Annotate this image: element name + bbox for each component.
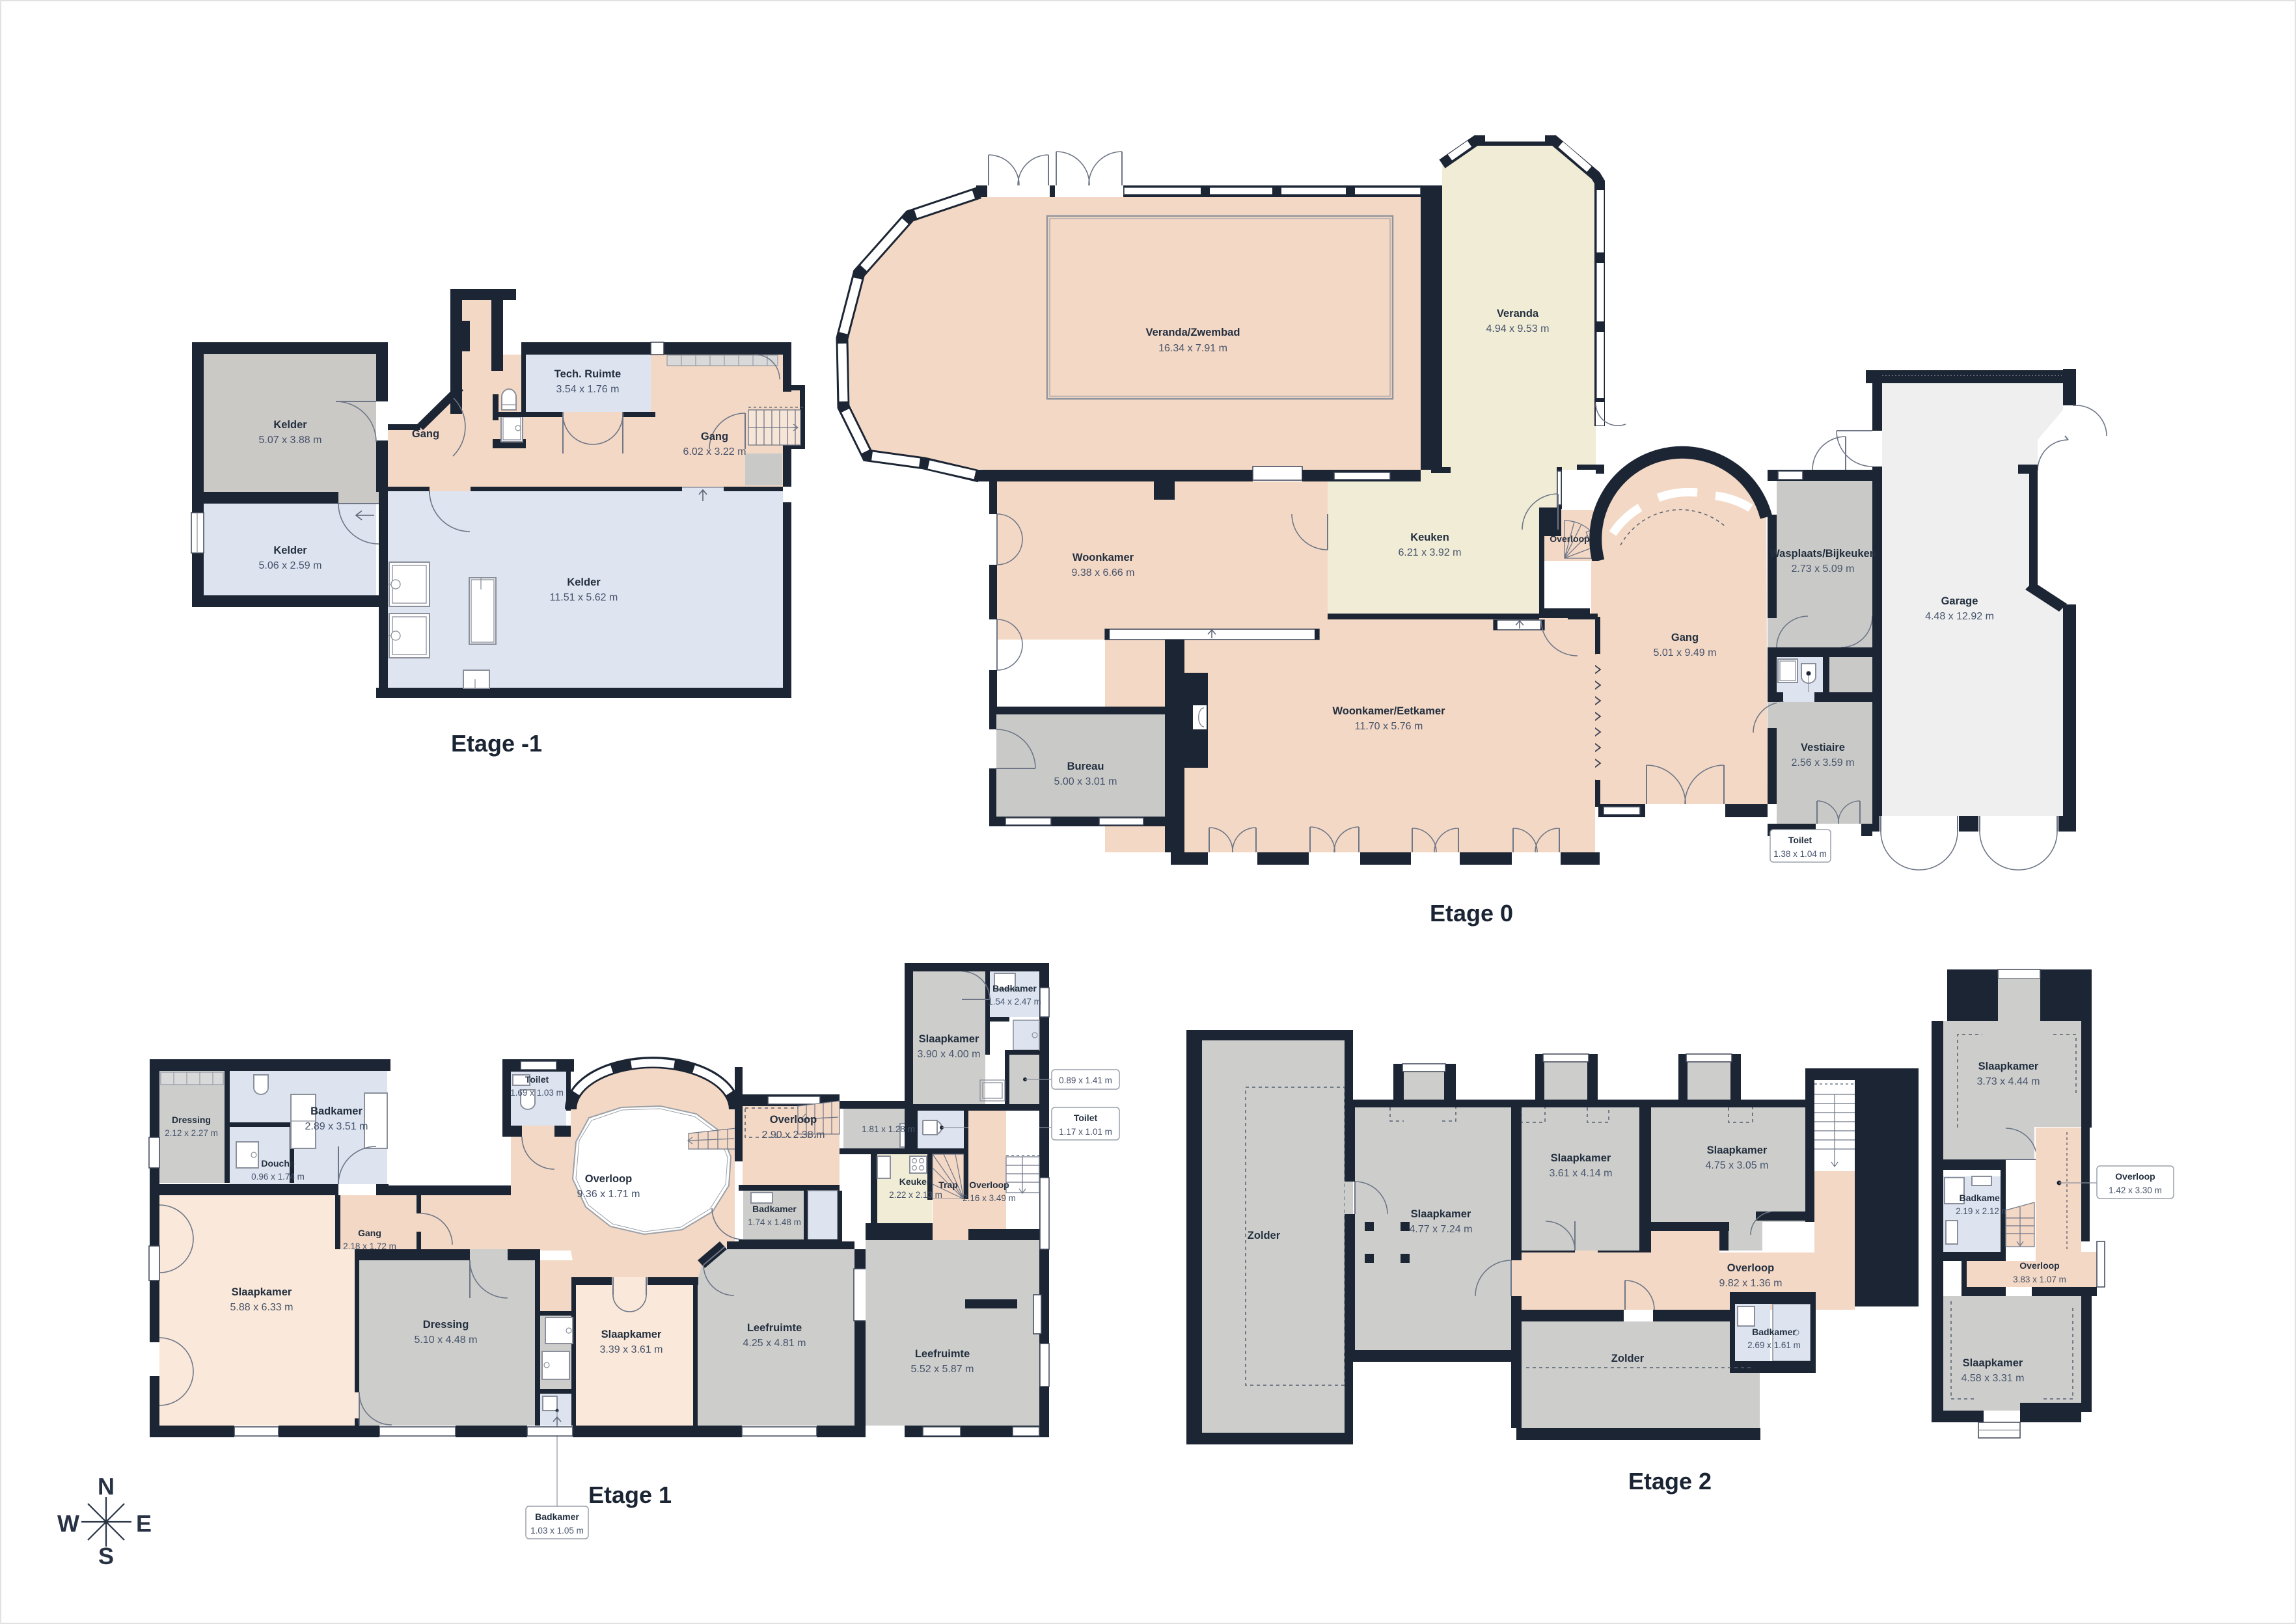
svg-text:3.90 x 4.00 m: 3.90 x 4.00 m bbox=[918, 1049, 981, 1060]
svg-text:Slaapkamer: Slaapkamer bbox=[1551, 1152, 1611, 1164]
svg-text:Overloop: Overloop bbox=[770, 1114, 817, 1126]
svg-text:Badkamer: Badkamer bbox=[310, 1105, 362, 1117]
svg-text:Slaapkamer: Slaapkamer bbox=[232, 1286, 292, 1298]
svg-text:2.22 x 2.13 m: 2.22 x 2.13 m bbox=[889, 1190, 942, 1200]
svg-text:5.10 x 4.48 m: 5.10 x 4.48 m bbox=[415, 1334, 478, 1346]
svg-text:Overloop: Overloop bbox=[2019, 1260, 2059, 1271]
svg-text:2.69 x 1.61 m: 2.69 x 1.61 m bbox=[1747, 1340, 1801, 1350]
svg-text:9.38 x 6.66 m: 9.38 x 6.66 m bbox=[1072, 567, 1135, 578]
svg-text:Dressing: Dressing bbox=[172, 1115, 211, 1125]
svg-text:Etage -1: Etage -1 bbox=[451, 730, 542, 757]
svg-text:4.94 x 9.53 m: 4.94 x 9.53 m bbox=[1486, 323, 1550, 334]
svg-text:2.90 x 2.38 m: 2.90 x 2.38 m bbox=[762, 1130, 825, 1141]
svg-text:1.54 x 2.47 m: 1.54 x 2.47 m bbox=[988, 997, 1041, 1007]
svg-text:1.03 x 1.05 m: 1.03 x 1.05 m bbox=[530, 1526, 584, 1536]
svg-text:Keuken: Keuken bbox=[1410, 532, 1449, 543]
svg-text:2.56 x 3.59 m: 2.56 x 3.59 m bbox=[1792, 757, 1855, 768]
svg-text:Badkamer: Badkamer bbox=[535, 1511, 579, 1522]
svg-text:Dressing: Dressing bbox=[423, 1319, 469, 1331]
svg-text:Badkamer: Badkamer bbox=[752, 1204, 797, 1214]
svg-text:Gang: Gang bbox=[412, 428, 439, 440]
svg-text:Overloop: Overloop bbox=[969, 1180, 1009, 1190]
svg-text:Trap: Trap bbox=[938, 1180, 958, 1190]
svg-text:N: N bbox=[98, 1473, 115, 1500]
svg-text:5.06 x 2.59 m: 5.06 x 2.59 m bbox=[259, 560, 322, 571]
svg-text:6.02 x 3.22 m: 6.02 x 3.22 m bbox=[683, 446, 746, 457]
svg-text:Zolder: Zolder bbox=[1611, 1353, 1645, 1364]
svg-text:Toilet: Toilet bbox=[1074, 1113, 1098, 1123]
svg-text:Badkamer: Badkamer bbox=[1752, 1327, 1796, 1337]
svg-text:2.73 x 5.09 m: 2.73 x 5.09 m bbox=[1792, 563, 1855, 575]
svg-text:1.81 x 1.28 m: 1.81 x 1.28 m bbox=[862, 1124, 915, 1134]
svg-text:5.52 x 5.87 m: 5.52 x 5.87 m bbox=[911, 1364, 974, 1375]
svg-text:Slaapkamer: Slaapkamer bbox=[1411, 1208, 1471, 1220]
svg-text:1.17 x 1.01 m: 1.17 x 1.01 m bbox=[1059, 1127, 1112, 1137]
svg-text:Veranda: Veranda bbox=[1497, 308, 1539, 319]
svg-text:Veranda/Zwembad: Veranda/Zwembad bbox=[1146, 327, 1240, 338]
svg-text:Keuken: Keuken bbox=[899, 1176, 933, 1187]
svg-text:Wasplaats/Bijkeuken: Wasplaats/Bijkeuken bbox=[1770, 548, 1876, 560]
svg-text:Zolder: Zolder bbox=[1248, 1230, 1281, 1241]
svg-text:Gang: Gang bbox=[358, 1228, 381, 1238]
svg-text:4.25 x 4.81 m: 4.25 x 4.81 m bbox=[743, 1338, 806, 1349]
svg-text:Douche: Douche bbox=[261, 1158, 295, 1169]
svg-text:16.34 x 7.91 m: 16.34 x 7.91 m bbox=[1158, 343, 1227, 354]
svg-text:Etage 1: Etage 1 bbox=[588, 1482, 672, 1508]
svg-text:3.54 x 1.76 m: 3.54 x 1.76 m bbox=[556, 384, 620, 395]
svg-text:11.51 x 5.62 m: 11.51 x 5.62 m bbox=[550, 592, 618, 603]
svg-text:6.21 x 3.92 m: 6.21 x 3.92 m bbox=[1399, 547, 1462, 558]
svg-text:2.18 x 1.72 m: 2.18 x 1.72 m bbox=[343, 1241, 396, 1251]
svg-text:0.89 x 1.41 m: 0.89 x 1.41 m bbox=[1059, 1076, 1112, 1085]
svg-text:E: E bbox=[136, 1510, 152, 1537]
svg-text:3.61 x 4.14 m: 3.61 x 4.14 m bbox=[1550, 1168, 1613, 1179]
svg-text:Garage: Garage bbox=[1941, 595, 1978, 607]
svg-text:3.73 x 4.44 m: 3.73 x 4.44 m bbox=[1977, 1076, 2040, 1087]
svg-text:4.58 x 3.31 m: 4.58 x 3.31 m bbox=[1961, 1373, 2025, 1384]
svg-text:Overloop: Overloop bbox=[2115, 1171, 2155, 1182]
svg-text:Slaapkamer: Slaapkamer bbox=[1963, 1357, 2023, 1369]
svg-text:1.74 x 1.48 m: 1.74 x 1.48 m bbox=[748, 1217, 801, 1227]
svg-text:0.96 x 1.74 m: 0.96 x 1.74 m bbox=[251, 1172, 305, 1182]
svg-text:Slaapkamer: Slaapkamer bbox=[601, 1329, 662, 1340]
svg-text:4.75 x 3.05 m: 4.75 x 3.05 m bbox=[1706, 1160, 1769, 1171]
svg-text:Slaapkamer: Slaapkamer bbox=[1978, 1061, 2039, 1072]
svg-text:3.39 x 3.61 m: 3.39 x 3.61 m bbox=[600, 1344, 663, 1355]
svg-text:Woonkamer/Eetkamer: Woonkamer/Eetkamer bbox=[1332, 705, 1445, 717]
svg-text:Slaapkamer: Slaapkamer bbox=[919, 1033, 979, 1045]
svg-text:9.36 x 1.71 m: 9.36 x 1.71 m bbox=[577, 1189, 640, 1200]
svg-text:Etage 2: Etage 2 bbox=[1628, 1468, 1712, 1495]
svg-text:2.19 x 2.12 m: 2.19 x 2.12 m bbox=[1956, 1206, 2009, 1216]
svg-text:Woonkamer: Woonkamer bbox=[1073, 552, 1134, 563]
svg-text:Gang: Gang bbox=[701, 431, 728, 442]
svg-text:4.77 x 7.24 m: 4.77 x 7.24 m bbox=[1410, 1224, 1473, 1235]
svg-text:Overloop: Overloop bbox=[1550, 534, 1589, 544]
svg-text:Leefruimte: Leefruimte bbox=[915, 1348, 970, 1360]
svg-text:Kelder: Kelder bbox=[567, 576, 601, 588]
svg-text:Toilet: Toilet bbox=[525, 1074, 549, 1085]
svg-text:Tech. Ruimte: Tech. Ruimte bbox=[554, 368, 621, 380]
svg-text:Slaapkamer: Slaapkamer bbox=[1707, 1144, 1768, 1156]
svg-text:11.70 x 5.76 m: 11.70 x 5.76 m bbox=[1355, 721, 1423, 732]
svg-text:9.82 x 1.36 m: 9.82 x 1.36 m bbox=[1719, 1278, 1783, 1289]
svg-text:W: W bbox=[57, 1510, 79, 1537]
svg-text:1.42 x 3.30 m: 1.42 x 3.30 m bbox=[2109, 1185, 2162, 1195]
svg-text:Leefruimte: Leefruimte bbox=[747, 1322, 802, 1334]
svg-text:Kelder: Kelder bbox=[273, 419, 307, 431]
svg-text:5.01 x 9.49 m: 5.01 x 9.49 m bbox=[1654, 647, 1717, 658]
svg-text:Bureau: Bureau bbox=[1067, 761, 1104, 772]
svg-text:5.00 x 3.01 m: 5.00 x 3.01 m bbox=[1054, 776, 1117, 787]
svg-text:4.48 x 12.92 m: 4.48 x 12.92 m bbox=[1925, 611, 1994, 622]
svg-text:Overloop: Overloop bbox=[1727, 1262, 1774, 1274]
svg-text:5.07 x 3.88 m: 5.07 x 3.88 m bbox=[259, 435, 322, 446]
svg-text:3.83 x 1.07 m: 3.83 x 1.07 m bbox=[2013, 1275, 2066, 1284]
svg-text:Gang: Gang bbox=[1671, 632, 1699, 643]
svg-text:Badkamer.: Badkamer. bbox=[1960, 1193, 2006, 1203]
svg-text:5.88 x 6.33 m: 5.88 x 6.33 m bbox=[230, 1302, 294, 1313]
svg-text:S: S bbox=[98, 1543, 114, 1569]
svg-text:1.38 x 1.04 m: 1.38 x 1.04 m bbox=[1773, 849, 1827, 859]
svg-text:2.16 x 3.49 m: 2.16 x 3.49 m bbox=[963, 1193, 1016, 1203]
svg-text:2.12 x 2.27 m: 2.12 x 2.27 m bbox=[165, 1128, 218, 1138]
svg-text:Kelder: Kelder bbox=[273, 545, 307, 556]
svg-text:Toilet: Toilet bbox=[1788, 835, 1812, 845]
svg-text:Vestiaire: Vestiaire bbox=[1801, 742, 1845, 753]
svg-text:1.69 x 1.03 m: 1.69 x 1.03 m bbox=[510, 1088, 564, 1098]
svg-text:Badkamer: Badkamer bbox=[992, 983, 1037, 994]
svg-text:Overloop: Overloop bbox=[585, 1173, 632, 1185]
svg-text:2.89 x 3.51 m: 2.89 x 3.51 m bbox=[305, 1121, 368, 1132]
svg-text:Etage 0: Etage 0 bbox=[1430, 900, 1513, 927]
